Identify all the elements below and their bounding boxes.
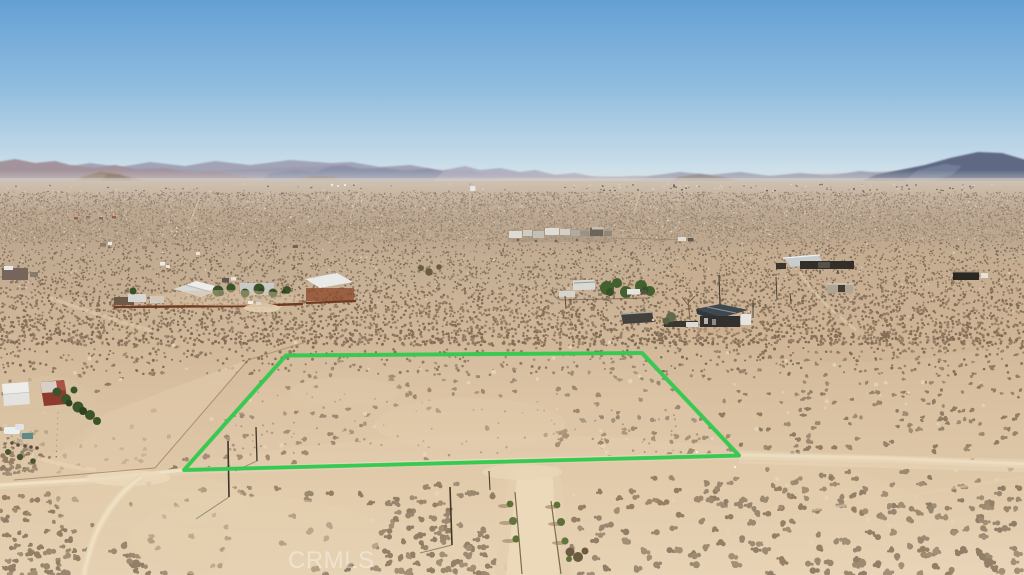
svg-text:CRMLS: CRMLS (288, 547, 375, 574)
